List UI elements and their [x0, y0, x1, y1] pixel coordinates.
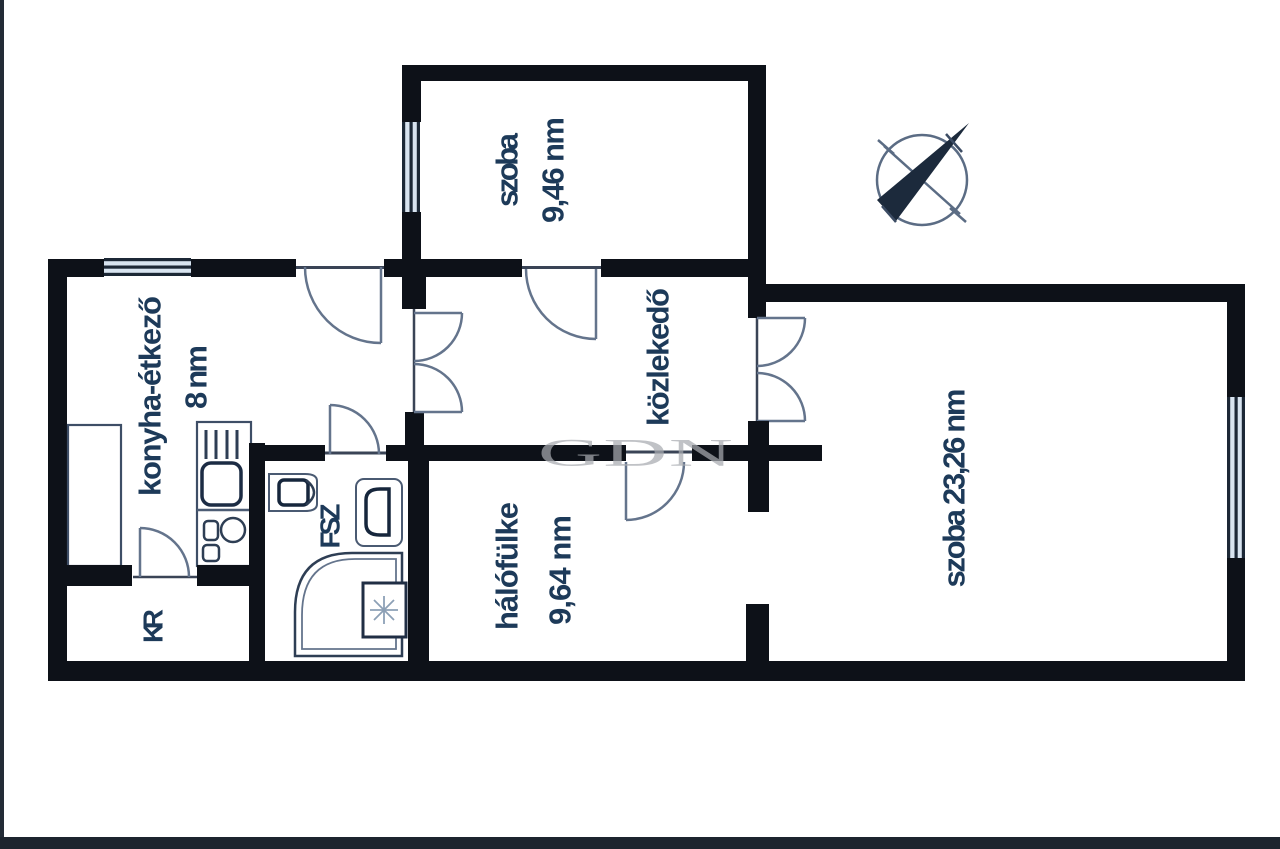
- svg-text:KR: KR: [138, 609, 169, 643]
- svg-text:9,46 nm: 9,46 nm: [536, 117, 571, 223]
- svg-text:közlekedő: közlekedő: [641, 288, 676, 426]
- svg-text:szoba: szoba: [490, 132, 525, 207]
- svg-text:hálófülke: hálófülke: [490, 502, 525, 630]
- svg-text:FSZ: FSZ: [315, 504, 346, 549]
- svg-text:GDN: GDN: [538, 430, 734, 474]
- svg-text:9,64 nm: 9,64 nm: [543, 515, 578, 625]
- svg-text:konyha-étkező: konyha-étkező: [133, 296, 168, 496]
- svg-text:szoba 23,26 nm: szoba 23,26 nm: [937, 389, 972, 588]
- svg-text:8 nm: 8 nm: [179, 345, 214, 409]
